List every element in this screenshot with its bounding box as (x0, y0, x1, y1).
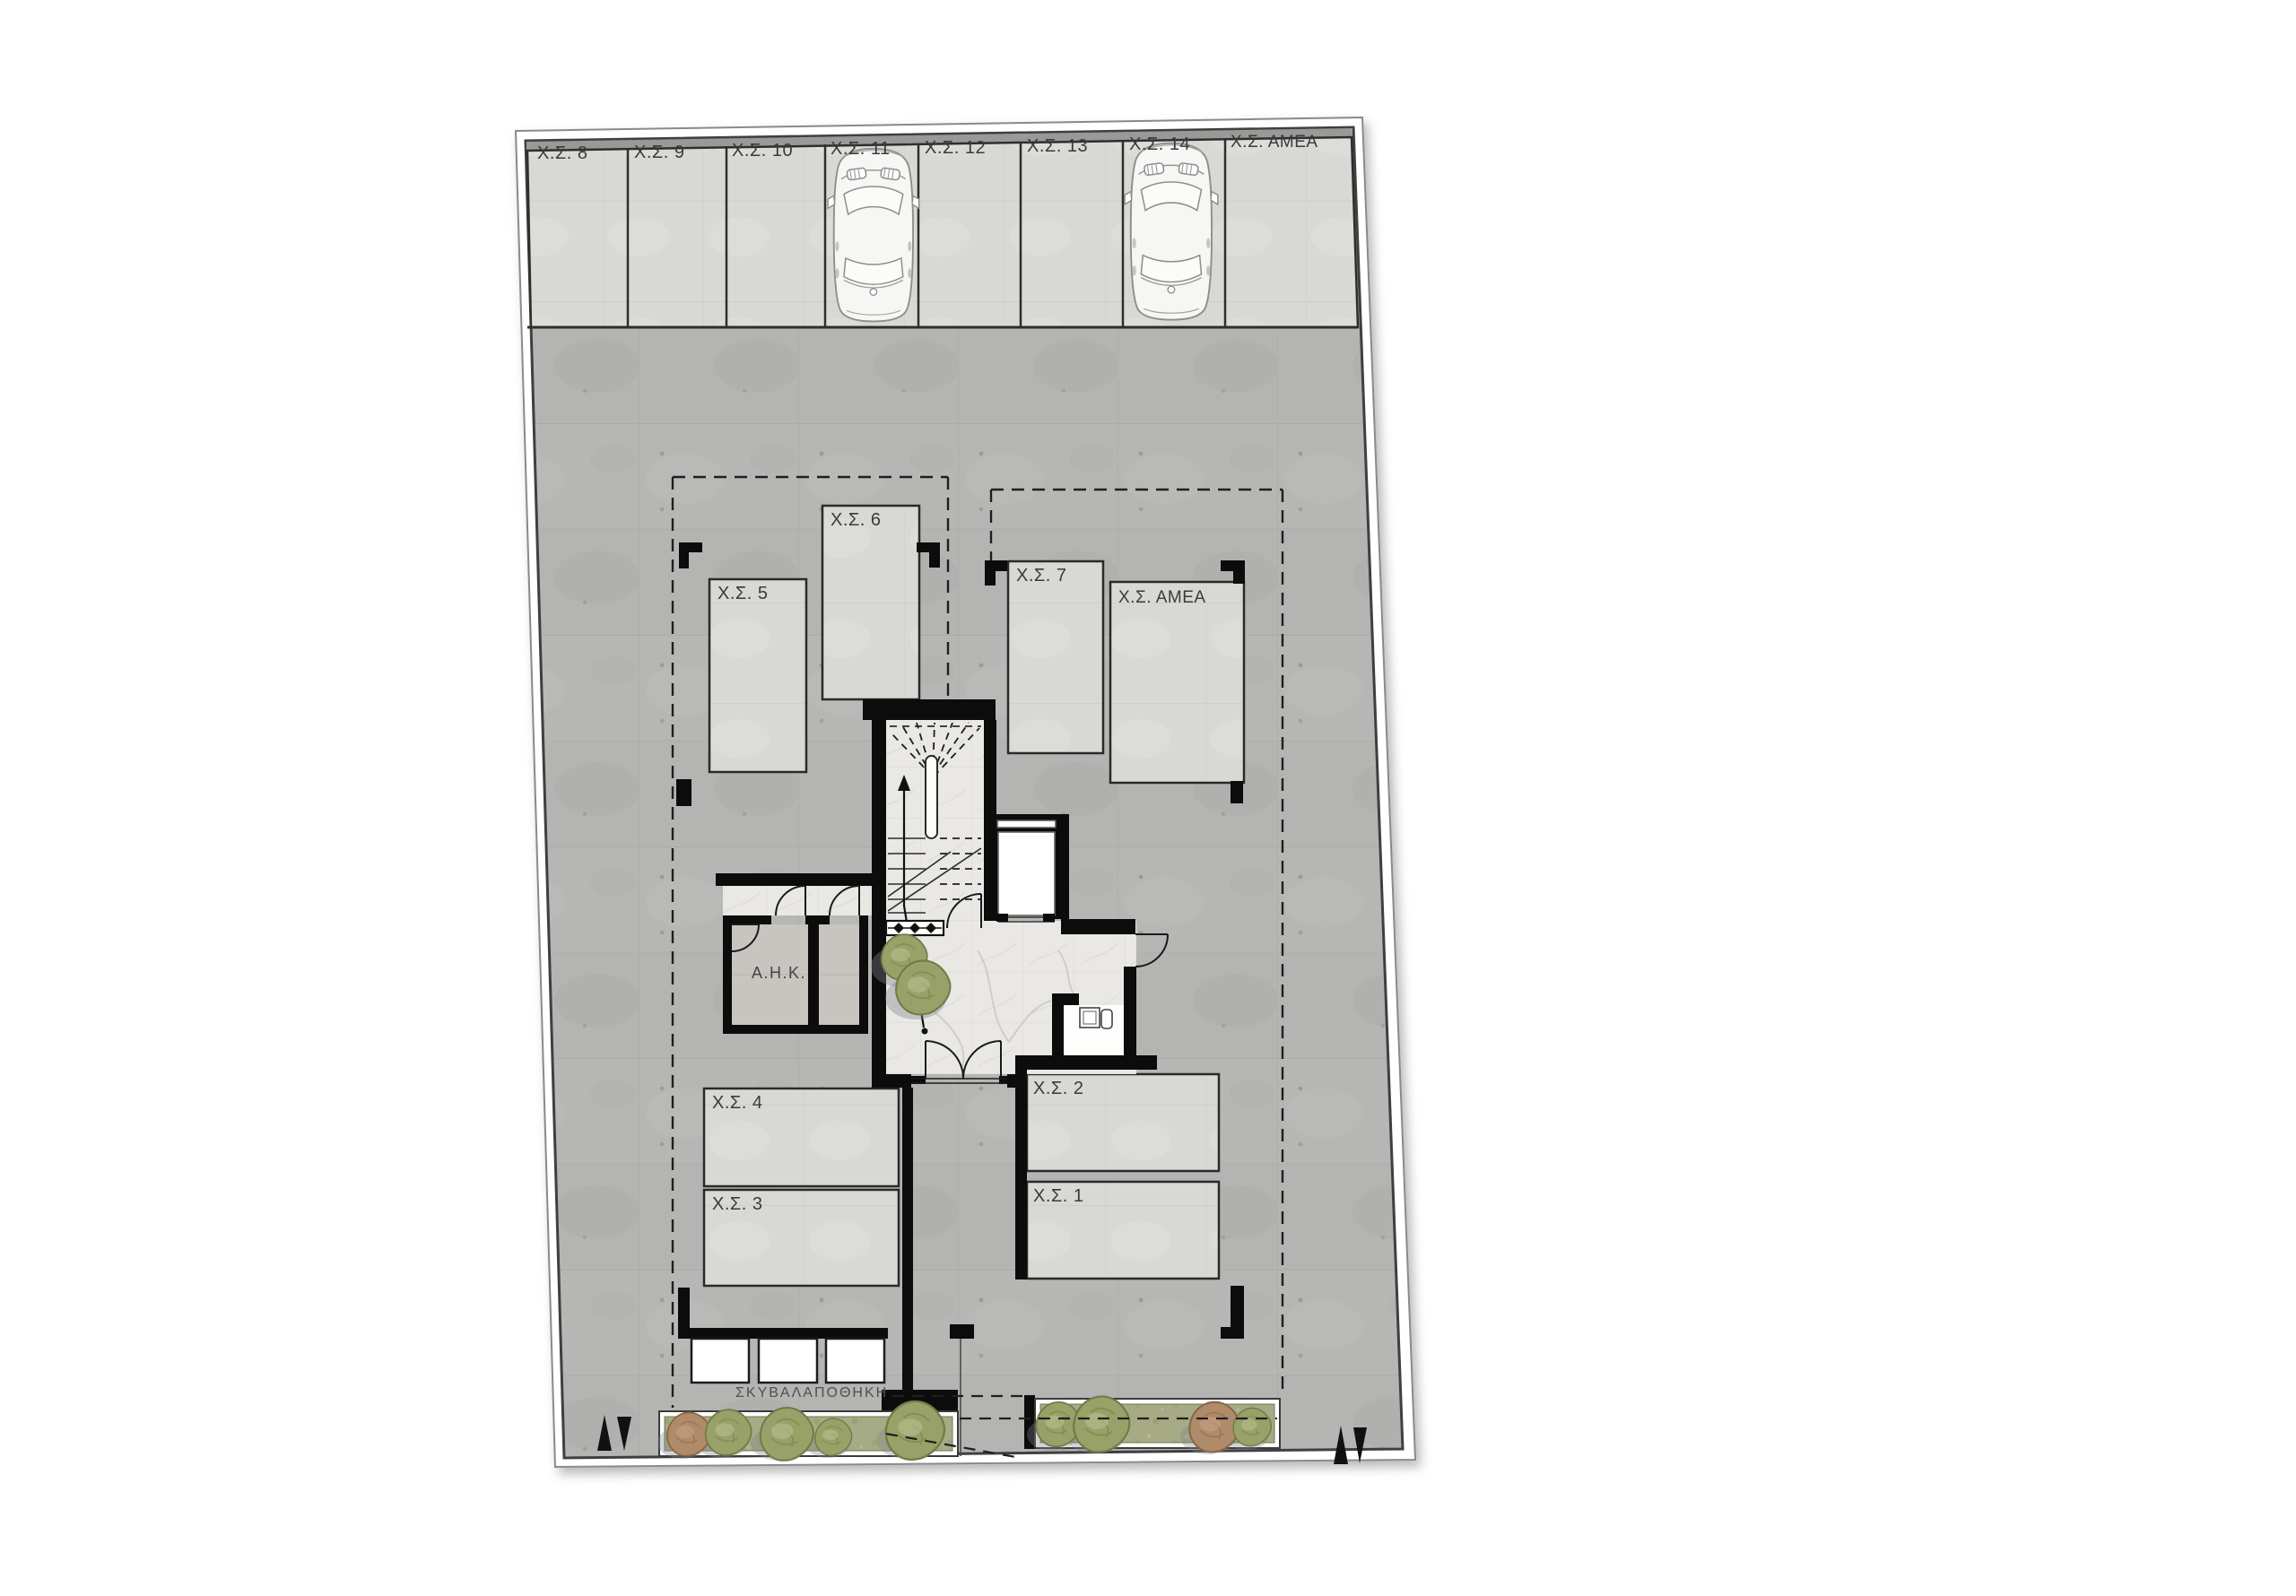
label-space-11: Χ.Σ. 11 (831, 140, 891, 158)
label-space-amea-top: Χ.Σ. ΑΜΕΑ (1231, 134, 1318, 151)
label-space-amea-middle: Χ.Σ. ΑΜΕΑ (1118, 589, 1206, 606)
label-space-3: Χ.Σ. 3 (712, 1195, 763, 1213)
label-space-6: Χ.Σ. 6 (831, 511, 882, 529)
garbage-bins (691, 1339, 884, 1383)
label-space-9: Χ.Σ. 9 (634, 143, 685, 161)
label-space-12: Χ.Σ. 12 (925, 139, 986, 157)
label-space-2: Χ.Σ. 2 (1033, 1080, 1084, 1097)
elevator (996, 820, 1056, 922)
label-garbage-store: ΣΚΥΒΑΛΑΠΟΘΗΚΗ (735, 1386, 888, 1401)
label-ahk-room: Α.Η.Κ. (752, 965, 806, 981)
floor-plan-drawing (0, 0, 2296, 1596)
car-top-view-space-14 (1125, 143, 1218, 320)
label-space-4: Χ.Σ. 4 (712, 1094, 763, 1112)
wc-room (1064, 1005, 1124, 1055)
label-space-5: Χ.Σ. 5 (717, 585, 769, 603)
label-space-14: Χ.Σ. 14 (1129, 135, 1190, 153)
label-space-13: Χ.Σ. 13 (1027, 137, 1088, 155)
label-space-1: Χ.Σ. 1 (1033, 1187, 1084, 1205)
planter-right (1027, 1396, 1280, 1454)
louver-grille (886, 921, 944, 935)
car-top-view-space-11 (828, 149, 919, 322)
floor-plan-page: Χ.Σ. 8 Χ.Σ. 9 Χ.Σ. 10 Χ.Σ. 11 Χ.Σ. 12 Χ.… (0, 0, 2296, 1596)
label-space-8: Χ.Σ. 8 (537, 144, 588, 162)
label-space-10: Χ.Σ. 10 (732, 142, 793, 160)
label-space-7: Χ.Σ. 7 (1016, 567, 1067, 585)
